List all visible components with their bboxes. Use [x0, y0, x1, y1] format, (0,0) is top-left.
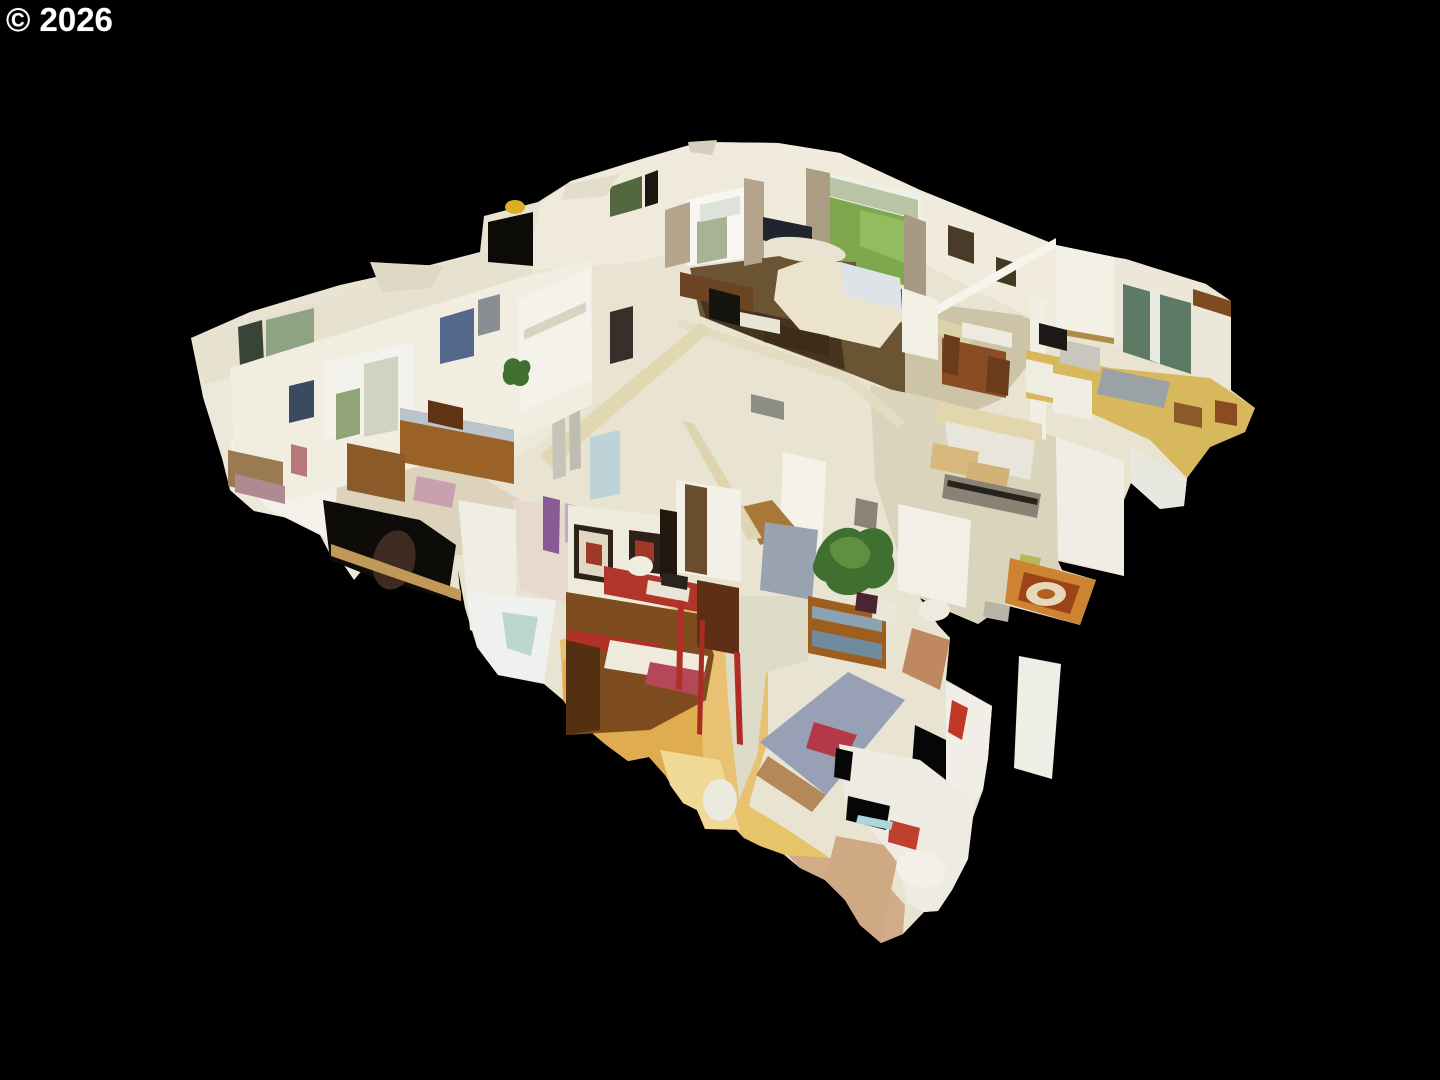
svg-text:© 2026: © 2026 — [6, 1, 113, 38]
